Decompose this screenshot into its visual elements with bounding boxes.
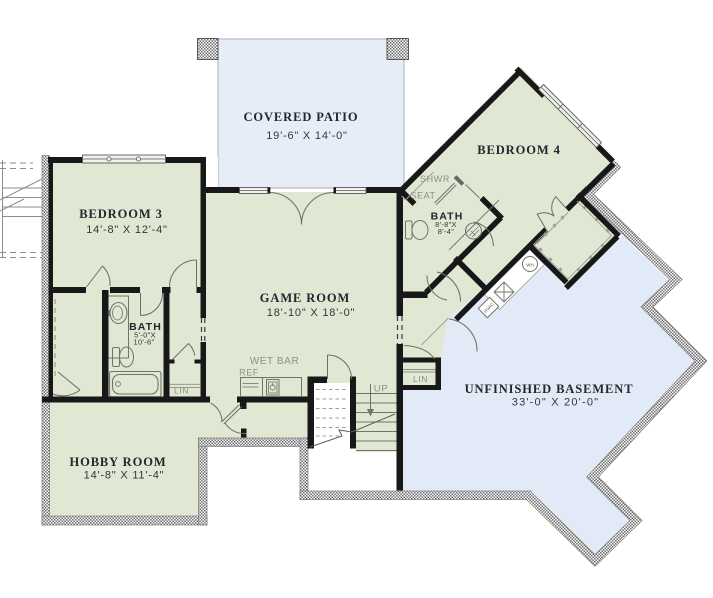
svg-text:COVERED PATIO: COVERED PATIO [243,110,358,124]
svg-text:14'-8" X 12'-4": 14'-8" X 12'-4" [86,224,168,236]
svg-text:LIN: LIN [413,374,428,384]
svg-text:SHWR: SHWR [420,174,450,184]
svg-text:HOBBY ROOM: HOBBY ROOM [69,455,166,469]
svg-text:WET BAR: WET BAR [250,356,300,367]
svg-text:BEDROOM 3: BEDROOM 3 [79,207,162,221]
svg-text:GAME ROOM: GAME ROOM [260,291,350,305]
svg-text:BEDROOM 4: BEDROOM 4 [477,143,560,157]
svg-text:SEAT: SEAT [410,191,435,201]
svg-text:UNFINISHED BASEMENT: UNFINISHED BASEMENT [465,382,634,396]
svg-text:LIN: LIN [174,386,189,396]
svg-text:33'-0" X 20'-0": 33'-0" X 20'-0" [512,397,600,409]
svg-text:8'-4": 8'-4" [438,227,454,236]
svg-text:14'-8" X 11'-4": 14'-8" X 11'-4" [84,470,165,482]
svg-text:10'-6": 10'-6" [134,338,155,347]
svg-text:REF: REF [239,368,259,378]
svg-text:19'-6" X 14'-0": 19'-6" X 14'-0" [266,130,348,142]
svg-text:WH: WH [526,263,534,268]
svg-text:18'-10" X 18'-0": 18'-10" X 18'-0" [267,307,355,319]
svg-text:UP: UP [374,384,388,395]
